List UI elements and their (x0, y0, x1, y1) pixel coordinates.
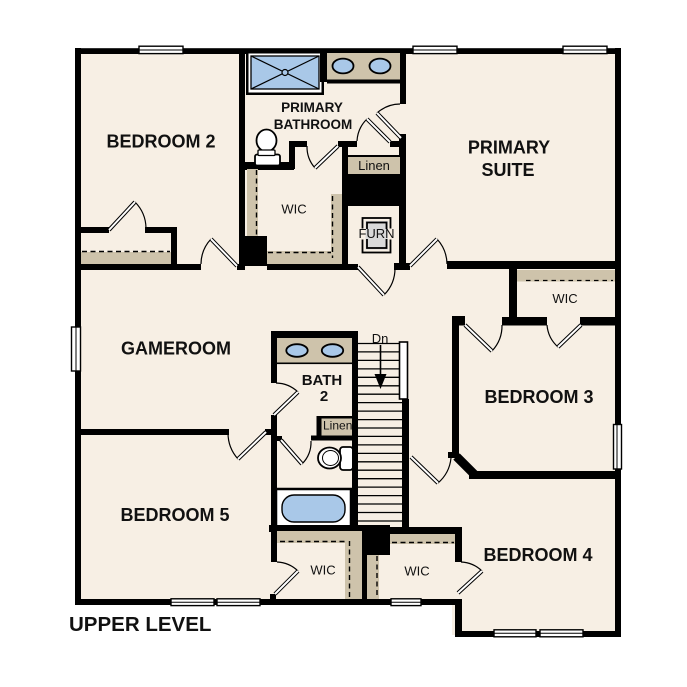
svg-text:WIC: WIC (310, 563, 335, 578)
svg-text:BATH: BATH (302, 372, 343, 389)
svg-text:WIC: WIC (281, 202, 306, 217)
svg-text:PRIMARY: PRIMARY (468, 138, 550, 158)
svg-text:SUITE: SUITE (481, 160, 534, 180)
svg-text:BEDROOM 2: BEDROOM 2 (106, 132, 215, 152)
svg-text:Linen: Linen (358, 158, 390, 173)
svg-text:2: 2 (320, 388, 328, 405)
svg-text:BATHROOM: BATHROOM (274, 117, 353, 132)
svg-text:FURN: FURN (358, 226, 394, 241)
svg-text:BEDROOM 5: BEDROOM 5 (120, 505, 229, 525)
svg-text:Dn: Dn (372, 331, 389, 346)
svg-text:PRIMARY: PRIMARY (281, 100, 343, 115)
svg-text:WIC: WIC (552, 291, 577, 306)
svg-text:Linen: Linen (323, 419, 352, 433)
svg-text:GAMEROOM: GAMEROOM (121, 339, 231, 359)
svg-text:WIC: WIC (404, 564, 429, 579)
svg-text:BEDROOM 3: BEDROOM 3 (484, 387, 593, 407)
svg-text:UPPER LEVEL: UPPER LEVEL (69, 613, 211, 636)
svg-text:BEDROOM 4: BEDROOM 4 (483, 545, 592, 565)
